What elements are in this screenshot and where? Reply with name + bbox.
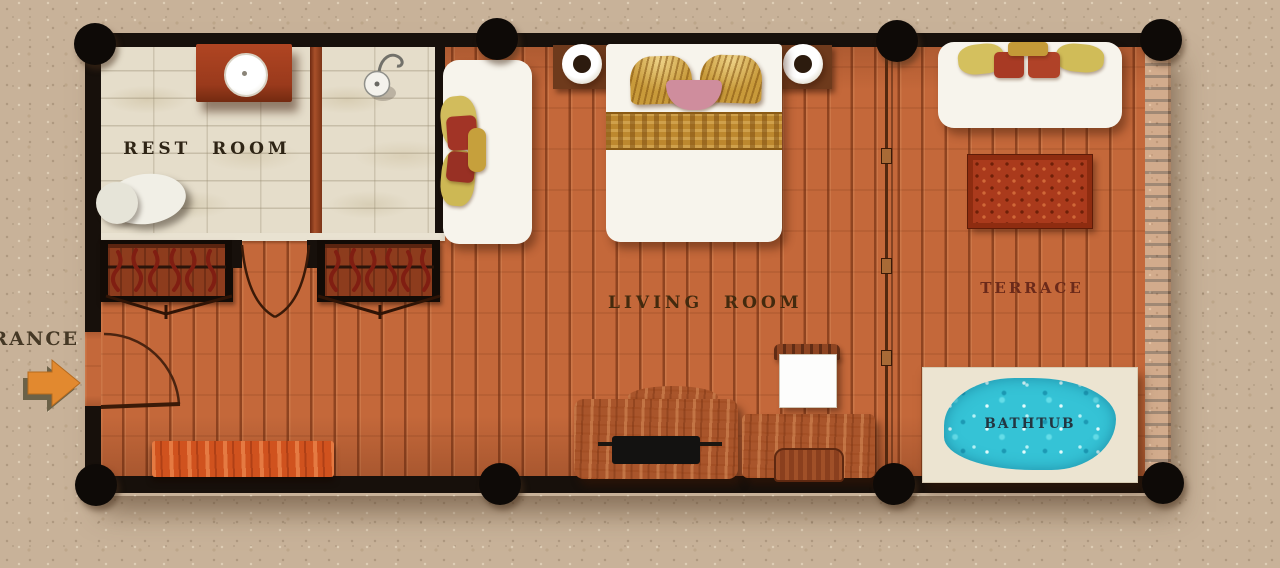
- corner-post-bottom-right: [1142, 462, 1184, 504]
- terrace-label: TERRACE: [956, 279, 1108, 297]
- closet-double-door-arcs: [242, 245, 309, 317]
- post-bottom-terrace: [873, 463, 915, 505]
- floor-plan-scene: BATHTUB: [0, 0, 1280, 568]
- post-bottom-center: [479, 463, 521, 505]
- entrance-door-swing-arc: [104, 334, 179, 404]
- entrance-label-text: ENTRANCE: [0, 328, 79, 350]
- rest-room-label: REST ROOM: [109, 139, 305, 159]
- entrance-arrow-icon: [23, 360, 80, 412]
- entrance-label: ENTRANCE: [0, 328, 79, 354]
- corner-post-bottom-left: [75, 464, 117, 506]
- shower-head-icon: [365, 55, 403, 101]
- post-top-terrace: [876, 20, 918, 62]
- living-room-label: LIVING ROOM: [608, 293, 798, 313]
- hangers-icon: [113, 250, 429, 290]
- post-top-center: [476, 18, 518, 60]
- entrance-door: [101, 334, 180, 407]
- entrance-door-leaf: [101, 404, 180, 407]
- corner-post-top-right: [1140, 19, 1182, 61]
- corner-post-top-left: [74, 23, 116, 65]
